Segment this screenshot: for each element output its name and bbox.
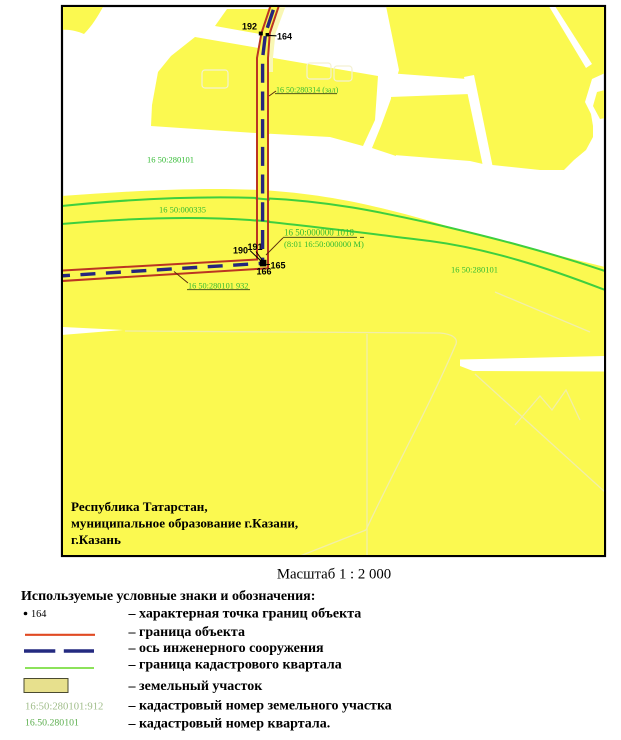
svg-text:16 50:000000 1018: 16 50:000000 1018	[284, 228, 355, 238]
svg-text:16.50.280101: 16.50.280101	[25, 718, 79, 729]
svg-text:191: 191	[248, 242, 263, 252]
svg-text:(8:01 16:50:000000 М): (8:01 16:50:000000 М)	[284, 239, 364, 249]
svg-text:– кадастровый номер квартала.: – кадастровый номер квартала.	[128, 717, 331, 732]
svg-text:165: 165	[271, 260, 286, 270]
svg-text:166: 166	[257, 266, 272, 276]
svg-text:– кадастровый номер земельного: – кадастровый номер земельного участка	[128, 699, 392, 714]
svg-text:Масштаб 1 : 2 000: Масштаб 1 : 2 000	[277, 567, 391, 583]
svg-text:муниципальное образование г.Ка: муниципальное образование г.Казани,	[71, 516, 298, 531]
svg-text:Республика Татарстан,: Республика Татарстан,	[71, 499, 208, 514]
svg-text:– граница кадастрового квартал: – граница кадастрового квартала	[128, 658, 342, 673]
svg-text:– граница объекта: – граница объекта	[128, 625, 245, 640]
svg-text:– характерная точка границ объ: – характерная точка границ объекта	[128, 607, 362, 622]
svg-text:16 50:280101: 16 50:280101	[451, 264, 498, 274]
svg-text:16 50:000335: 16 50:000335	[159, 205, 206, 215]
svg-text:16 50:280314 (зал): 16 50:280314 (зал)	[276, 85, 339, 94]
svg-text:г.Казань: г.Казань	[71, 532, 121, 547]
svg-text:16 50:280101 932: 16 50:280101 932	[188, 281, 248, 290]
svg-text:164: 164	[277, 32, 292, 42]
svg-text:164: 164	[31, 609, 46, 620]
svg-text:– ось инженерного сооружения: – ось инженерного сооружения	[128, 641, 325, 656]
svg-text:16 50:280101: 16 50:280101	[147, 154, 194, 164]
svg-text:190: 190	[233, 246, 248, 256]
svg-text:192: 192	[242, 22, 257, 32]
svg-text:16:50:280101:912: 16:50:280101:912	[25, 701, 103, 713]
svg-text:– земельный участок: – земельный участок	[128, 679, 264, 694]
svg-text:Используемые условные знаки и: Используемые условные знаки и обозначени…	[21, 589, 315, 604]
